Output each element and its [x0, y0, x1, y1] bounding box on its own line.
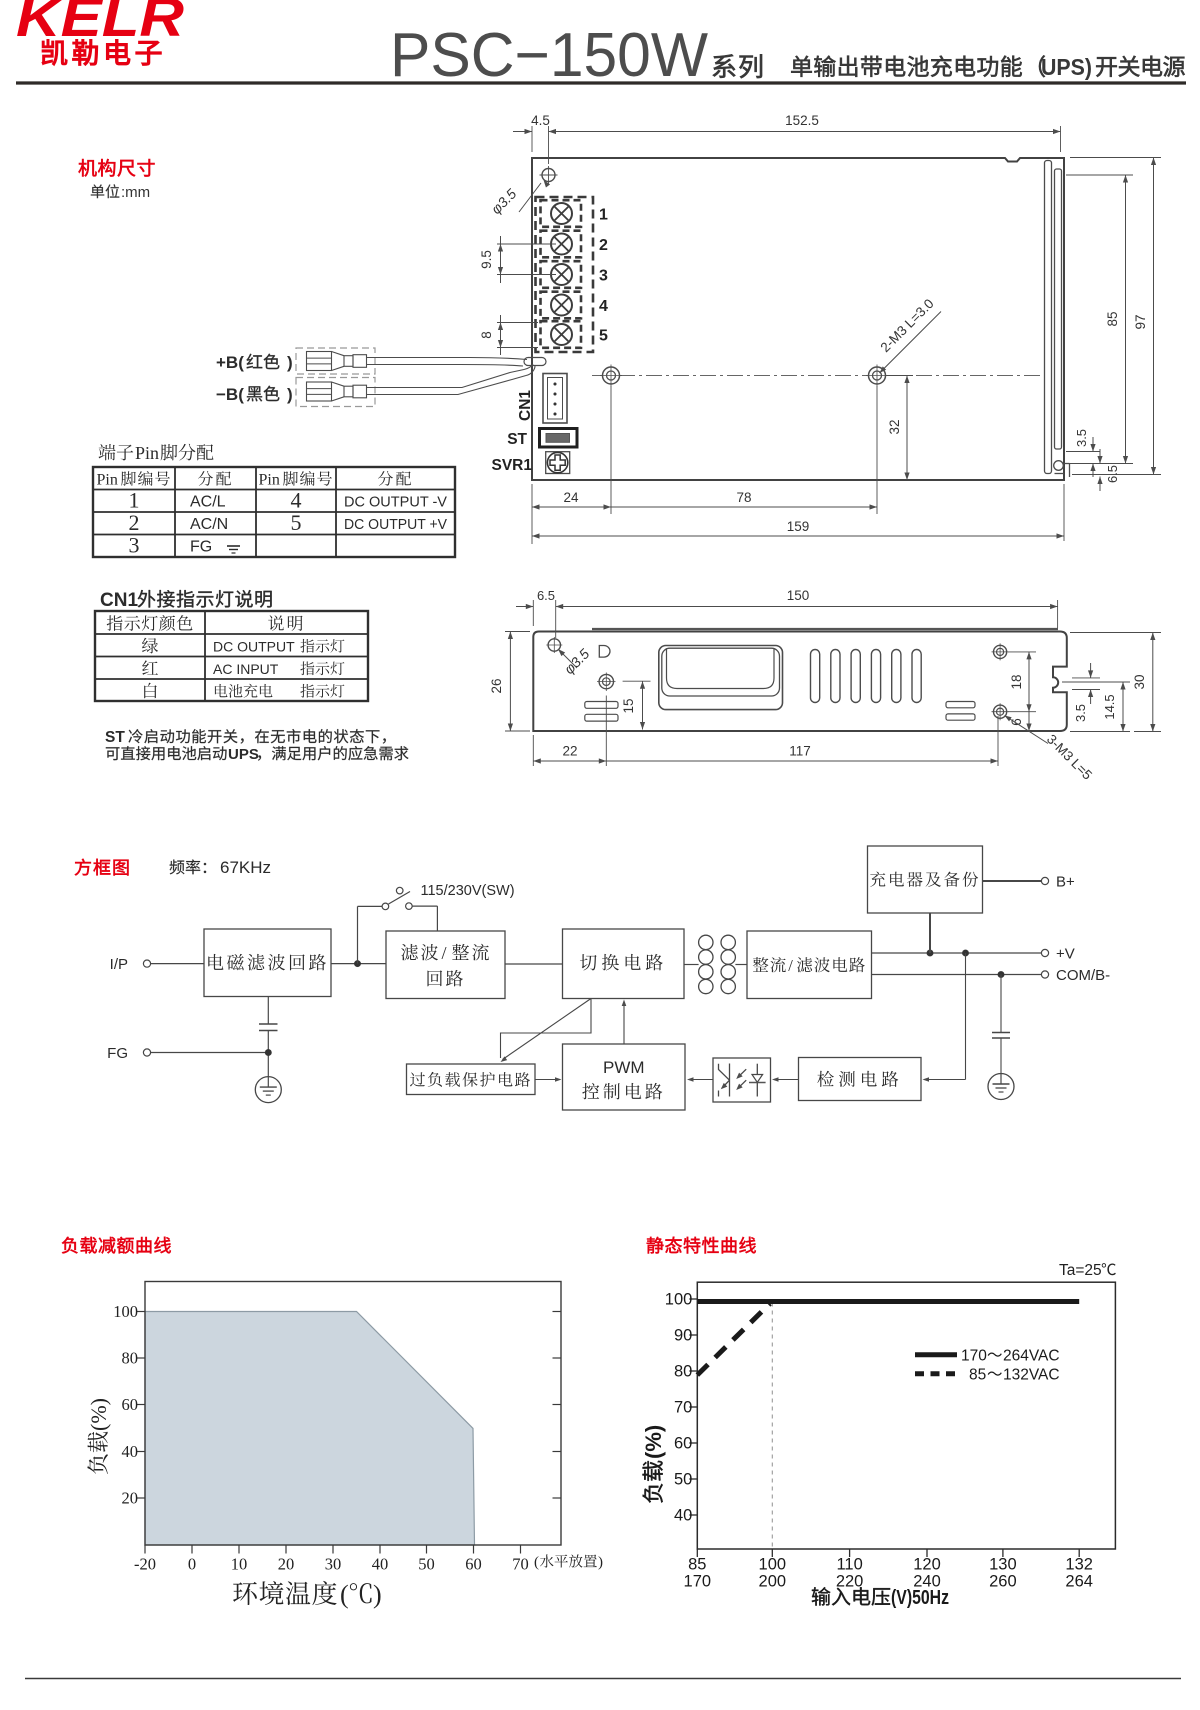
- svg-text:): ): [373, 1580, 382, 1609]
- svg-text:115/230V(SW): 115/230V(SW): [421, 883, 515, 899]
- svg-text:50: 50: [674, 1471, 692, 1489]
- svg-text:AC/L: AC/L: [190, 494, 226, 511]
- svg-text:117: 117: [789, 744, 811, 759]
- svg-text:60: 60: [674, 1435, 692, 1453]
- svg-text:3.5: 3.5: [1073, 704, 1088, 722]
- svg-text:B+: B+: [1056, 874, 1075, 891]
- svg-text:20: 20: [278, 1555, 295, 1574]
- svg-text:24: 24: [563, 490, 579, 505]
- svg-text:KELR: KELR: [16, 0, 184, 48]
- svg-text:COM/B-: COM/B-: [1056, 967, 1110, 984]
- svg-text:78: 78: [736, 490, 751, 505]
- svg-text:ST: ST: [105, 729, 125, 746]
- svg-text:85: 85: [969, 1367, 986, 1384]
- svg-text:85: 85: [688, 1556, 706, 1574]
- svg-text:40: 40: [372, 1555, 389, 1574]
- svg-text:(: (: [340, 1580, 349, 1609]
- svg-text:22: 22: [562, 744, 577, 759]
- svg-text:Pin: Pin: [259, 472, 280, 489]
- svg-text:4: 4: [599, 298, 608, 315]
- svg-text:): ): [287, 353, 293, 372]
- svg-text:PSC−150W: PSC−150W: [390, 21, 708, 90]
- svg-text:2: 2: [129, 510, 140, 535]
- svg-text:0: 0: [188, 1555, 196, 1574]
- svg-text:FG: FG: [107, 1045, 128, 1062]
- svg-text:6.5: 6.5: [537, 588, 555, 603]
- svg-text:5: 5: [291, 510, 302, 535]
- svg-text:152.5: 152.5: [785, 113, 819, 128]
- svg-text:φ3.5: φ3.5: [561, 645, 593, 677]
- svg-text:+V: +V: [1056, 946, 1075, 963]
- svg-text:10: 10: [231, 1555, 248, 1574]
- svg-text:−B(: −B(: [216, 385, 244, 404]
- svg-text:132: 132: [1065, 1556, 1093, 1574]
- svg-text:Pin: Pin: [97, 472, 118, 489]
- svg-text:2: 2: [599, 237, 608, 254]
- svg-text:100: 100: [113, 1302, 138, 1321]
- svg-text:I/P: I/P: [110, 956, 128, 973]
- svg-text:85: 85: [1105, 311, 1120, 326]
- svg-text:170: 170: [684, 1573, 712, 1591]
- svg-text:CN1: CN1: [100, 590, 138, 611]
- svg-text:170: 170: [961, 1348, 987, 1365]
- svg-text:): ): [287, 385, 293, 404]
- svg-text:100: 100: [759, 1556, 787, 1574]
- svg-text:(: (: [534, 1555, 539, 1571]
- svg-text:UPS): UPS): [1041, 54, 1092, 80]
- svg-text:-20: -20: [134, 1555, 156, 1574]
- svg-text:110: 110: [836, 1556, 862, 1574]
- svg-text:AC INPUT: AC INPUT: [213, 661, 279, 677]
- svg-text:220: 220: [836, 1573, 864, 1591]
- svg-text:50: 50: [418, 1555, 435, 1574]
- svg-text:): ): [598, 1555, 603, 1571]
- svg-text:DC OUTPUT -V: DC OUTPUT -V: [344, 494, 447, 511]
- svg-text:4.5: 4.5: [531, 113, 550, 128]
- svg-text:3: 3: [129, 533, 140, 558]
- svg-text:DC OUTPUT: DC OUTPUT: [213, 639, 295, 655]
- svg-text:159: 159: [787, 519, 810, 534]
- svg-text:(V)50Hz: (V)50Hz: [891, 1587, 949, 1609]
- svg-text::mm: :mm: [121, 184, 150, 201]
- svg-text:30: 30: [1132, 674, 1147, 689]
- svg-text:264VAC: 264VAC: [1003, 1348, 1060, 1365]
- svg-text:80: 80: [674, 1363, 692, 1381]
- svg-text:8: 8: [479, 331, 494, 339]
- svg-text:120: 120: [913, 1556, 941, 1574]
- svg-text:6.5: 6.5: [1105, 465, 1120, 483]
- svg-text:67KHz: 67KHz: [220, 858, 271, 877]
- svg-text:9.5: 9.5: [479, 250, 494, 269]
- svg-text:100: 100: [665, 1291, 693, 1309]
- svg-text:90: 90: [674, 1327, 692, 1345]
- svg-text:20: 20: [122, 1489, 139, 1508]
- svg-text:32: 32: [887, 419, 902, 434]
- svg-text:1: 1: [129, 488, 140, 513]
- svg-text:(%): (%): [641, 1425, 666, 1459]
- svg-text:14.5: 14.5: [1102, 694, 1117, 719]
- svg-text:30: 30: [325, 1555, 342, 1574]
- svg-text:3.5: 3.5: [1074, 429, 1089, 447]
- svg-text:DC OUTPUT +V: DC OUTPUT +V: [344, 516, 447, 533]
- svg-text:FG: FG: [190, 539, 212, 556]
- svg-text:PWM: PWM: [603, 1058, 645, 1077]
- svg-text:SVR1: SVR1: [492, 457, 533, 474]
- svg-text:70: 70: [512, 1555, 529, 1574]
- svg-text:97: 97: [1133, 314, 1148, 329]
- svg-text:15: 15: [621, 698, 636, 713]
- svg-text:/: /: [788, 956, 793, 975]
- svg-text:φ3.5: φ3.5: [488, 185, 520, 217]
- svg-text:80: 80: [122, 1349, 139, 1368]
- svg-text:60: 60: [122, 1395, 139, 1414]
- svg-text:UPS: UPS: [228, 746, 259, 763]
- svg-text:26: 26: [489, 678, 504, 693]
- svg-text:132VAC: 132VAC: [1003, 1367, 1060, 1384]
- svg-text:(%): (%): [86, 1398, 111, 1431]
- svg-text:40: 40: [122, 1442, 139, 1461]
- svg-text:/: /: [442, 943, 447, 963]
- svg-text:+B(: +B(: [216, 353, 244, 372]
- svg-text:4: 4: [291, 488, 302, 513]
- svg-text:3-M3 L=5: 3-M3 L=5: [1044, 732, 1095, 783]
- svg-text:Pin: Pin: [135, 443, 159, 463]
- svg-text:260: 260: [989, 1573, 1017, 1591]
- svg-text:2-M3 L=3.0: 2-M3 L=3.0: [878, 296, 937, 355]
- svg-text:264: 264: [1065, 1573, 1093, 1591]
- svg-text:60: 60: [465, 1555, 482, 1574]
- svg-text:Ta=25: Ta=25: [1059, 1262, 1102, 1279]
- svg-text:130: 130: [989, 1556, 1017, 1574]
- svg-text:40: 40: [674, 1507, 692, 1525]
- svg-text:18: 18: [1009, 674, 1024, 689]
- svg-text:200: 200: [759, 1573, 787, 1591]
- svg-text:ST: ST: [507, 431, 527, 448]
- svg-text:70: 70: [674, 1399, 692, 1417]
- svg-text:CN1: CN1: [517, 390, 534, 421]
- svg-text:5: 5: [599, 328, 608, 345]
- svg-text:1: 1: [599, 207, 608, 224]
- svg-text:AC/N: AC/N: [190, 516, 228, 533]
- svg-text:3: 3: [599, 268, 608, 285]
- svg-text:150: 150: [787, 588, 810, 603]
